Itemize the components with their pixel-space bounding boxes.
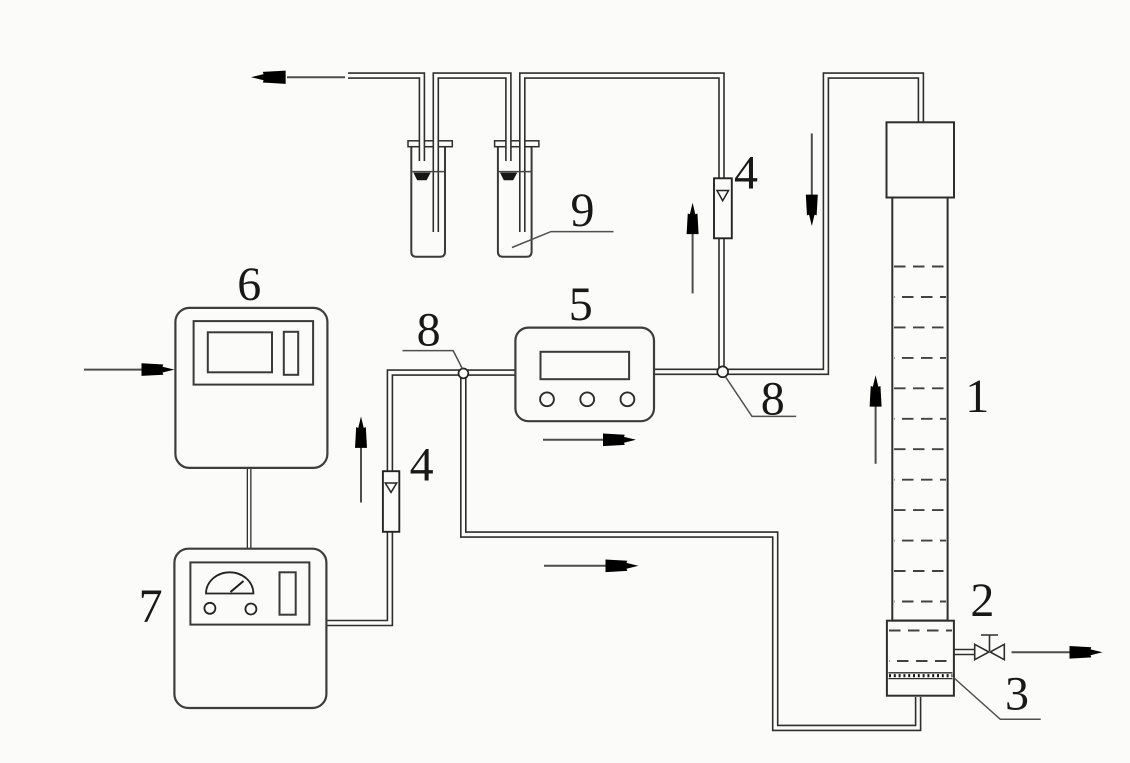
svg-text:5: 5 bbox=[569, 278, 593, 331]
svg-text:9: 9 bbox=[571, 184, 595, 237]
svg-text:2: 2 bbox=[970, 574, 994, 627]
svg-text:1: 1 bbox=[965, 370, 989, 423]
svg-text:6: 6 bbox=[237, 258, 261, 311]
svg-text:4: 4 bbox=[734, 147, 758, 200]
svg-text:7: 7 bbox=[139, 580, 163, 633]
svg-text:8: 8 bbox=[417, 304, 441, 357]
svg-text:8: 8 bbox=[761, 373, 785, 426]
svg-text:4: 4 bbox=[410, 439, 434, 492]
svg-text:3: 3 bbox=[1005, 668, 1029, 721]
